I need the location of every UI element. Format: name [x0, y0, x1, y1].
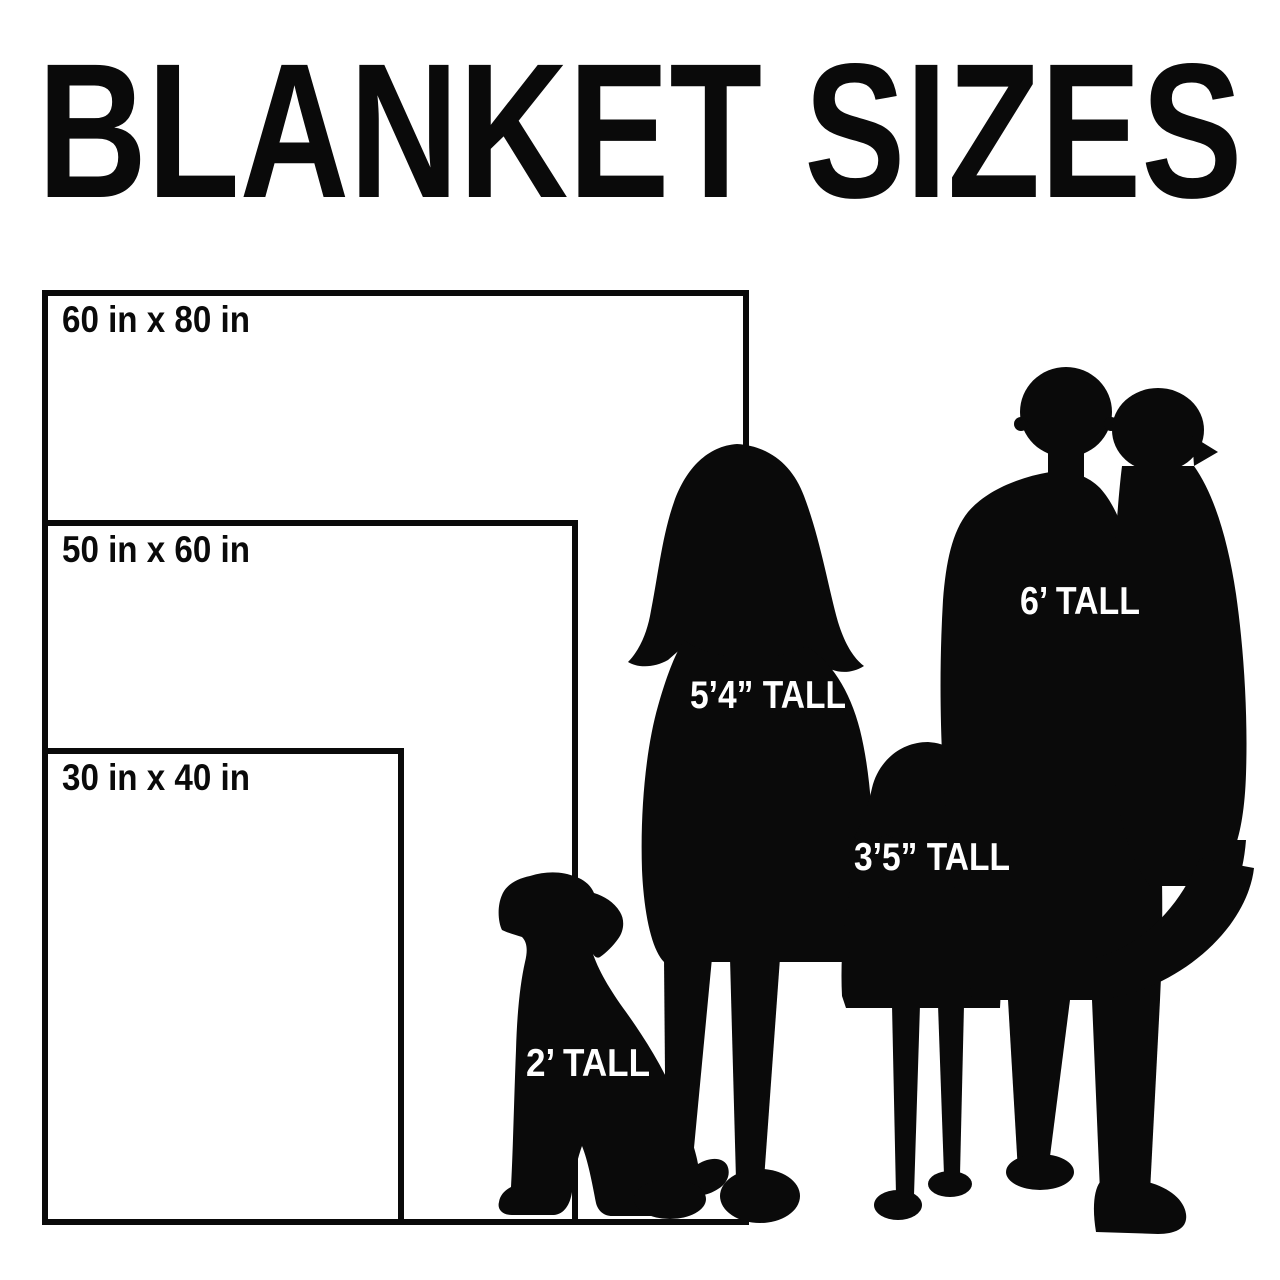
blanket-size-chart: BLANKET SIZES 60 in x 80 in 50 in x 60 i… — [0, 0, 1280, 1280]
blanket-30x40-outline — [45, 751, 401, 1222]
man-height-label: 6’ TALL — [1020, 580, 1140, 623]
man-with-toddler-silhouette — [941, 367, 1254, 1234]
dog-height-label: 2’ TALL — [526, 1042, 650, 1085]
woman-height-label: 5’4” TALL — [690, 674, 846, 717]
toddler-hair-flip — [1192, 436, 1218, 466]
man-front-shoe — [1094, 1182, 1186, 1234]
page-title: BLANKET SIZES — [38, 23, 1243, 238]
man-left-ear — [1014, 417, 1028, 431]
woman-front-shoe — [720, 1169, 800, 1223]
toddler-body — [1110, 466, 1247, 886]
girl-left-foot — [874, 1190, 922, 1220]
girl-right-foot — [928, 1171, 972, 1197]
blanket-30x40: 30 in x 40 in — [45, 751, 401, 1222]
woman-back-shoe — [634, 1179, 706, 1219]
man-front-leg — [1092, 1000, 1160, 1192]
blanket-60x80-label: 60 in x 80 in — [62, 299, 250, 340]
girl-right-leg — [938, 1005, 964, 1175]
man-back-leg — [1008, 1000, 1070, 1172]
blanket-30x40-label: 30 in x 40 in — [62, 757, 250, 798]
toddler-head — [1112, 388, 1204, 472]
man-back-shoe — [1006, 1154, 1074, 1190]
blanket-50x60-label: 50 in x 60 in — [62, 529, 250, 570]
girl-left-leg — [892, 1005, 920, 1195]
woman-front-leg — [730, 958, 780, 1180]
girl-height-label: 3’5” TALL — [854, 836, 1010, 879]
